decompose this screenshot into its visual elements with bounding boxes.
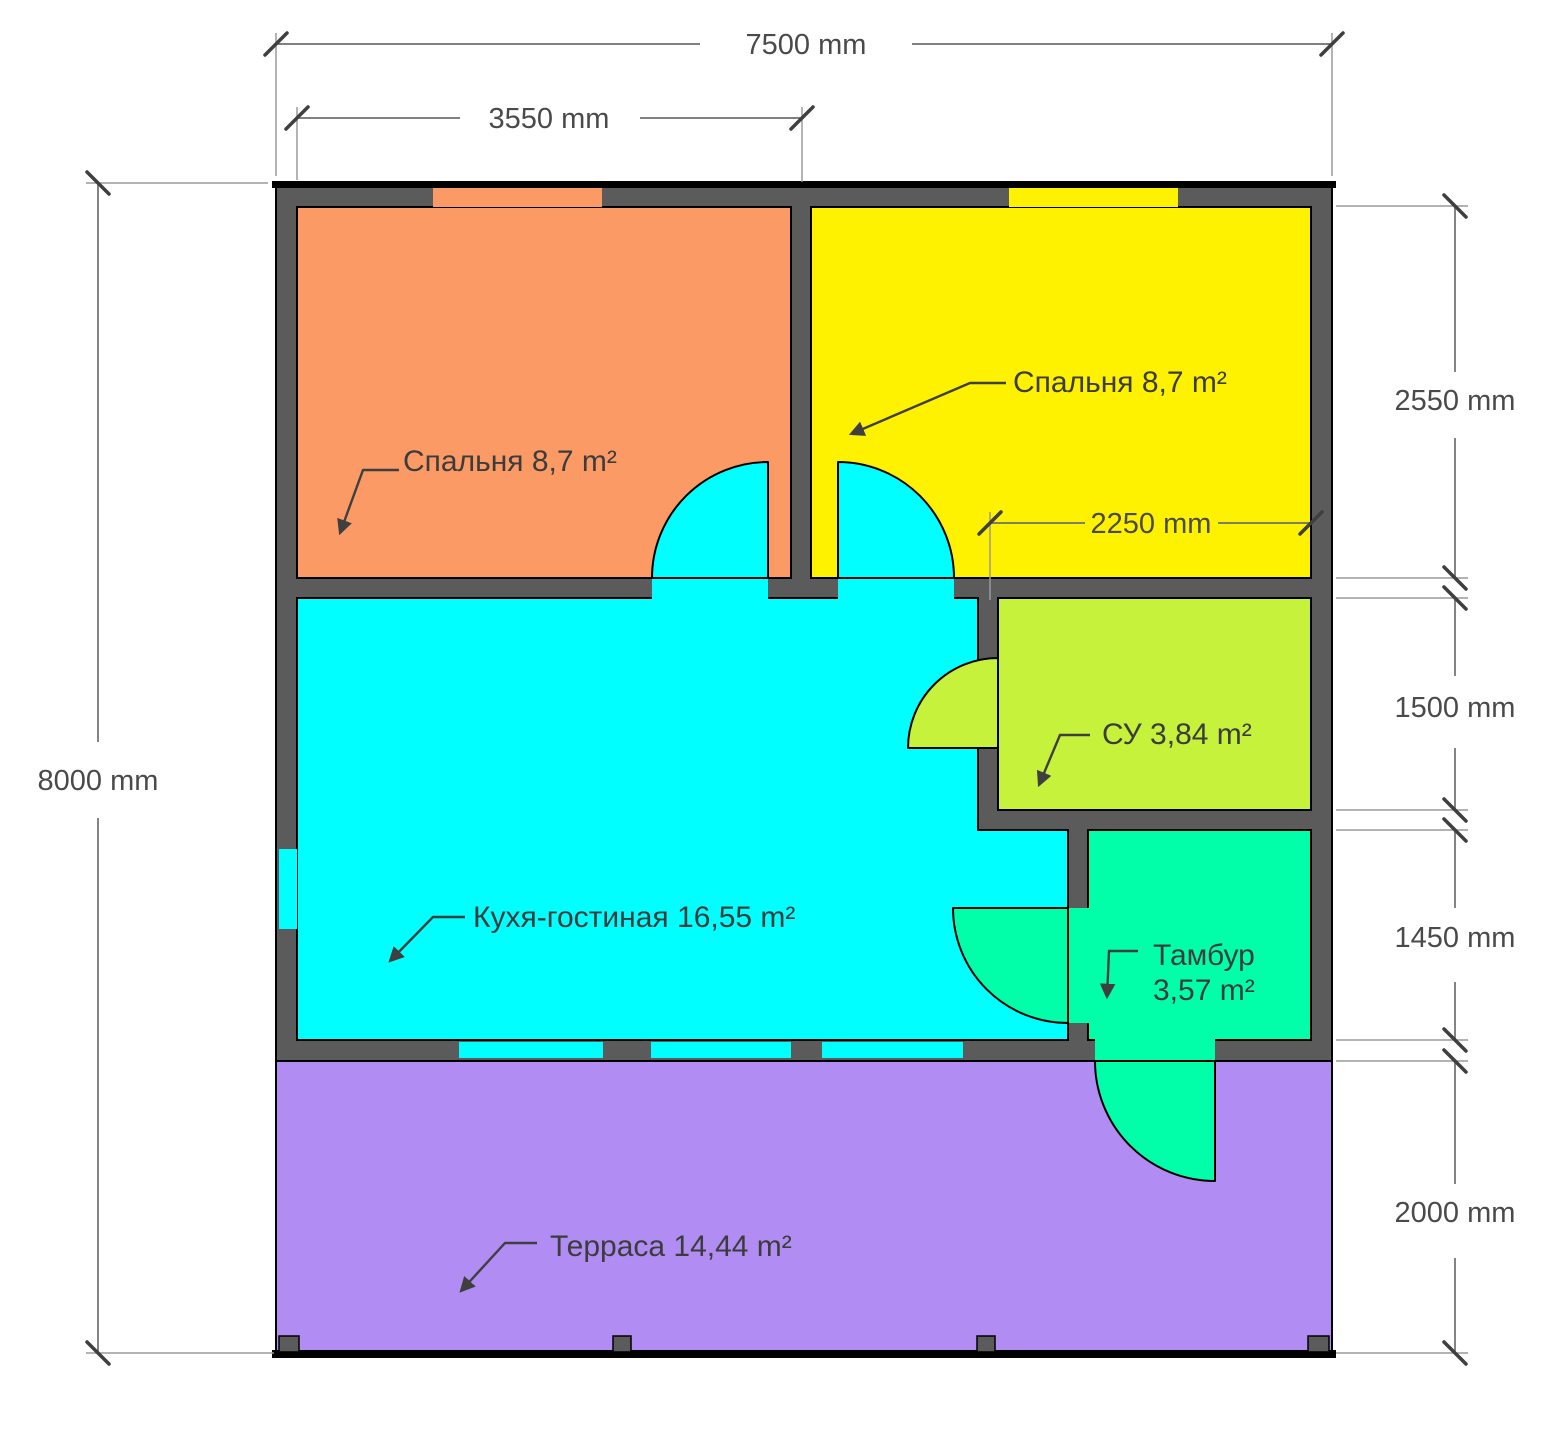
dim-overall-height: 8000 mm	[38, 172, 159, 1364]
window-kitchen-south-1	[459, 1042, 603, 1058]
door-opening-vestibule-kitchen	[1067, 908, 1089, 1023]
dim-right-side: 2550 mm 1500 mm 1450 mm 2000 mm	[1395, 195, 1516, 1364]
window-bedroom-left	[433, 188, 602, 207]
window-kitchen-west	[279, 849, 297, 929]
terrace-post	[279, 1336, 299, 1352]
terrace-post	[977, 1336, 995, 1352]
label-vestibule-line1: Тамбур	[1153, 939, 1255, 972]
terrace-edge-line	[272, 1350, 1336, 1358]
dim-label-overall-height: 8000 mm	[38, 765, 159, 797]
dim-left-bedroom-width: 3550 mm	[286, 103, 813, 135]
label-kitchen-living: Кухя-гостиная 16,55 m²	[473, 901, 795, 934]
dim-label-vestibule-height: 1450 mm	[1395, 922, 1516, 954]
label-bedroom-left: Спальня 8,7 m²	[403, 445, 617, 478]
room-kitchen-living	[297, 598, 1068, 1040]
dim-label-overall-width: 7500 mm	[746, 29, 867, 61]
dim-label-left-bedroom-width: 3550 mm	[489, 103, 610, 135]
dim-label-right-bedroom-height: 2550 mm	[1395, 385, 1516, 417]
label-terrace: Терраса 14,44 m²	[550, 1230, 792, 1263]
window-kitchen-south-3	[822, 1042, 963, 1058]
door-opening-vestibule-terrace	[1095, 1039, 1215, 1062]
dim-label-bathroom-height: 1500 mm	[1395, 692, 1516, 724]
floor-plan-drawing: 7500 mm 3550 mm 8000 mm	[0, 0, 1560, 1437]
label-bedroom-right: Спальня 8,7 m²	[1013, 366, 1227, 399]
terrace-post	[613, 1336, 631, 1352]
floor-plan-page: 7500 mm 3550 mm 8000 mm	[0, 0, 1560, 1437]
label-bathroom: СУ 3,84 m²	[1102, 718, 1252, 751]
dim-label-terrace-height: 2000 mm	[1395, 1197, 1516, 1229]
door-opening-bedroom-left	[652, 577, 768, 599]
room-vestibule	[1088, 830, 1311, 1040]
dim-overall-width: 7500 mm	[265, 29, 1343, 61]
door-opening-bedroom-right	[838, 577, 954, 599]
window-kitchen-south-2	[651, 1042, 791, 1058]
terrace-post	[1308, 1336, 1329, 1352]
room-bathroom	[998, 598, 1311, 810]
north-wall-outer-line	[272, 181, 1336, 188]
label-vestibule-line2: 3,57 m²	[1153, 974, 1255, 1007]
window-bedroom-right	[1009, 188, 1178, 207]
dim-label-right-bedroom-inner-width: 2250 mm	[1091, 508, 1212, 540]
